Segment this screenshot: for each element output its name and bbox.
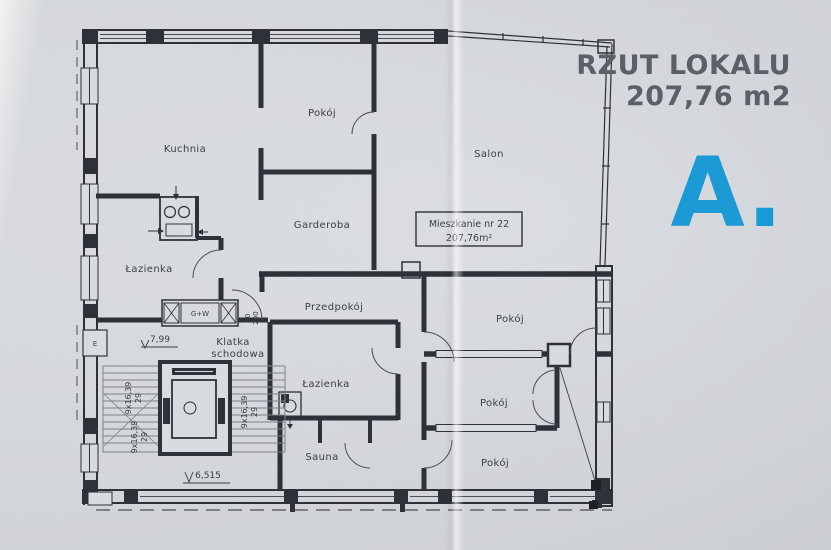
unit-label-line2: 207,76m² (446, 233, 492, 244)
plan-letter: A. (531, 150, 783, 236)
door-height-label: 200 (252, 311, 260, 324)
room-label-klatka-line2: schodowa (211, 349, 264, 360)
title-block: RZUT LOKALU 207,76 m2 A. (531, 50, 791, 236)
room-label-sauna: Sauna (305, 452, 338, 463)
leader-line (560, 368, 601, 509)
stair-rise-right: 29 (250, 407, 259, 417)
stair-rise-left-bottom: 29 (140, 432, 149, 442)
page-title: RZUT LOKALU (531, 50, 791, 81)
level-mid-value: 7,99 (150, 335, 170, 345)
shaft-label: G+W (191, 310, 209, 318)
room-label-lazienka-mid: Łazienka (301, 379, 349, 390)
unit-label-line1: Mieszkanie nr 22 (429, 219, 509, 230)
electric-label: E (93, 340, 97, 348)
room-label-lazienka-left: Łazienka (124, 264, 172, 275)
room-label-pokoj-right-top: Pokój (496, 313, 524, 325)
stair-rise-left-top: 29 (134, 393, 143, 403)
room-label-pokoj-right-bottom: Pokój (481, 457, 509, 469)
room-label-garderoba: Garderoba (294, 220, 350, 231)
stair-run-right: 9x16,39 (240, 396, 249, 429)
stair-run-left-top: 9x16,39 (124, 382, 133, 415)
room-label-klatka-line1: Klatka (216, 337, 250, 348)
door-width-label: 90 (244, 314, 252, 323)
elevator (160, 362, 230, 454)
room-label-przedpokoj: Przedpokój (305, 301, 364, 313)
room-label-kuchnia: Kuchnia (164, 144, 206, 155)
paper-photo: Mieszkanie nr 22 207,76m² 7,99 6,515 Kuc… (0, 0, 831, 550)
room-label-salon: Salon (474, 149, 504, 160)
room-label-pokoj-top: Pokój (308, 107, 336, 119)
stair-run-left-bottom: 9x16,39 (130, 421, 139, 454)
level-low-value: 6,515 (195, 471, 221, 481)
room-label-pokoj-right-mid: Pokój (480, 397, 508, 409)
unit-label-box: Mieszkanie nr 22 207,76m² (416, 212, 522, 246)
area-subtitle: 207,76 m2 (531, 81, 791, 112)
